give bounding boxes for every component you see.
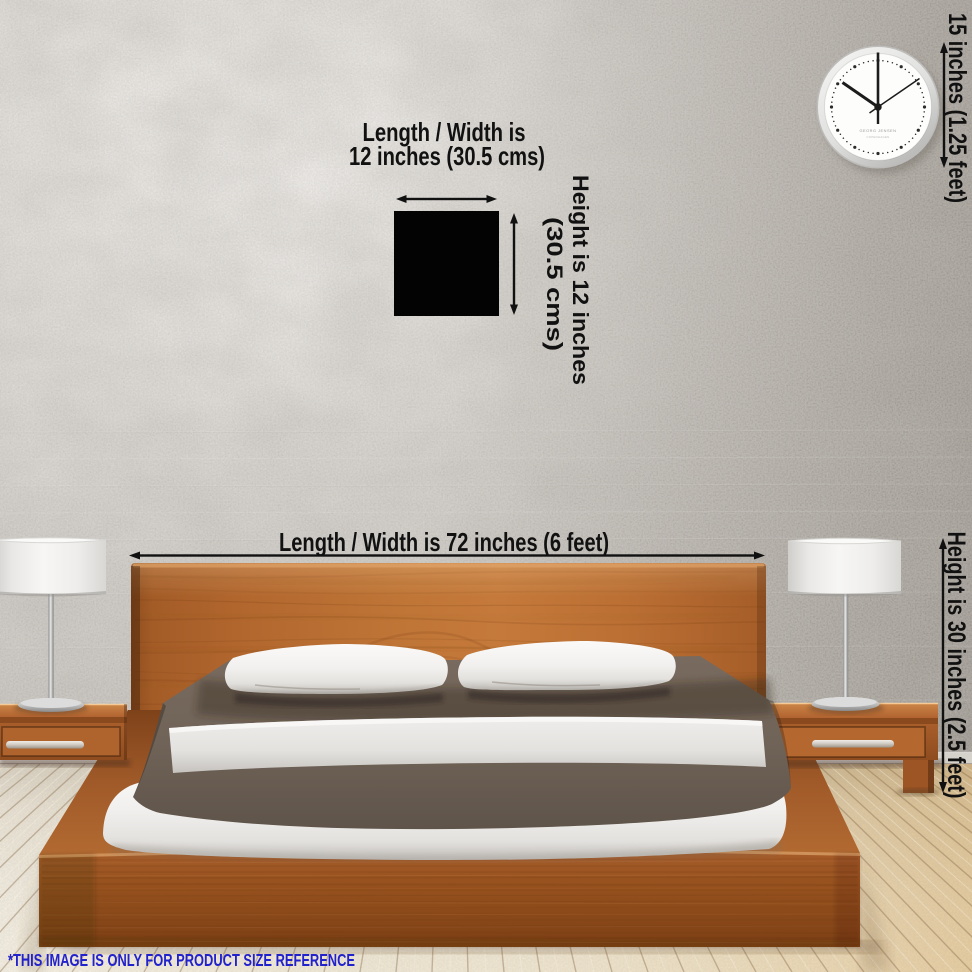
svg-text:COPENHAGEN: COPENHAGEN [867, 135, 890, 139]
svg-text:(30.5 cms): (30.5 cms) [542, 217, 567, 351]
svg-text:12 inches (30.5 cms): 12 inches (30.5 cms) [349, 141, 545, 171]
svg-text:Length / Width is 72 inches (6: Length / Width is 72 inches (6 feet) [279, 527, 609, 557]
svg-text:GEORG JENSEN: GEORG JENSEN [860, 128, 897, 133]
svg-text:Height is 30 inches (2.5 feet): Height is 30 inches (2.5 feet) [942, 532, 970, 799]
svg-text:Height is 12 inches: Height is 12 inches [568, 175, 593, 385]
svg-text:15 inches (1.25 feet): 15 inches (1.25 feet) [943, 13, 971, 203]
svg-text:*THIS IMAGE IS ONLY FOR PRODUC: *THIS IMAGE IS ONLY FOR PRODUCT SIZE REF… [8, 950, 355, 970]
